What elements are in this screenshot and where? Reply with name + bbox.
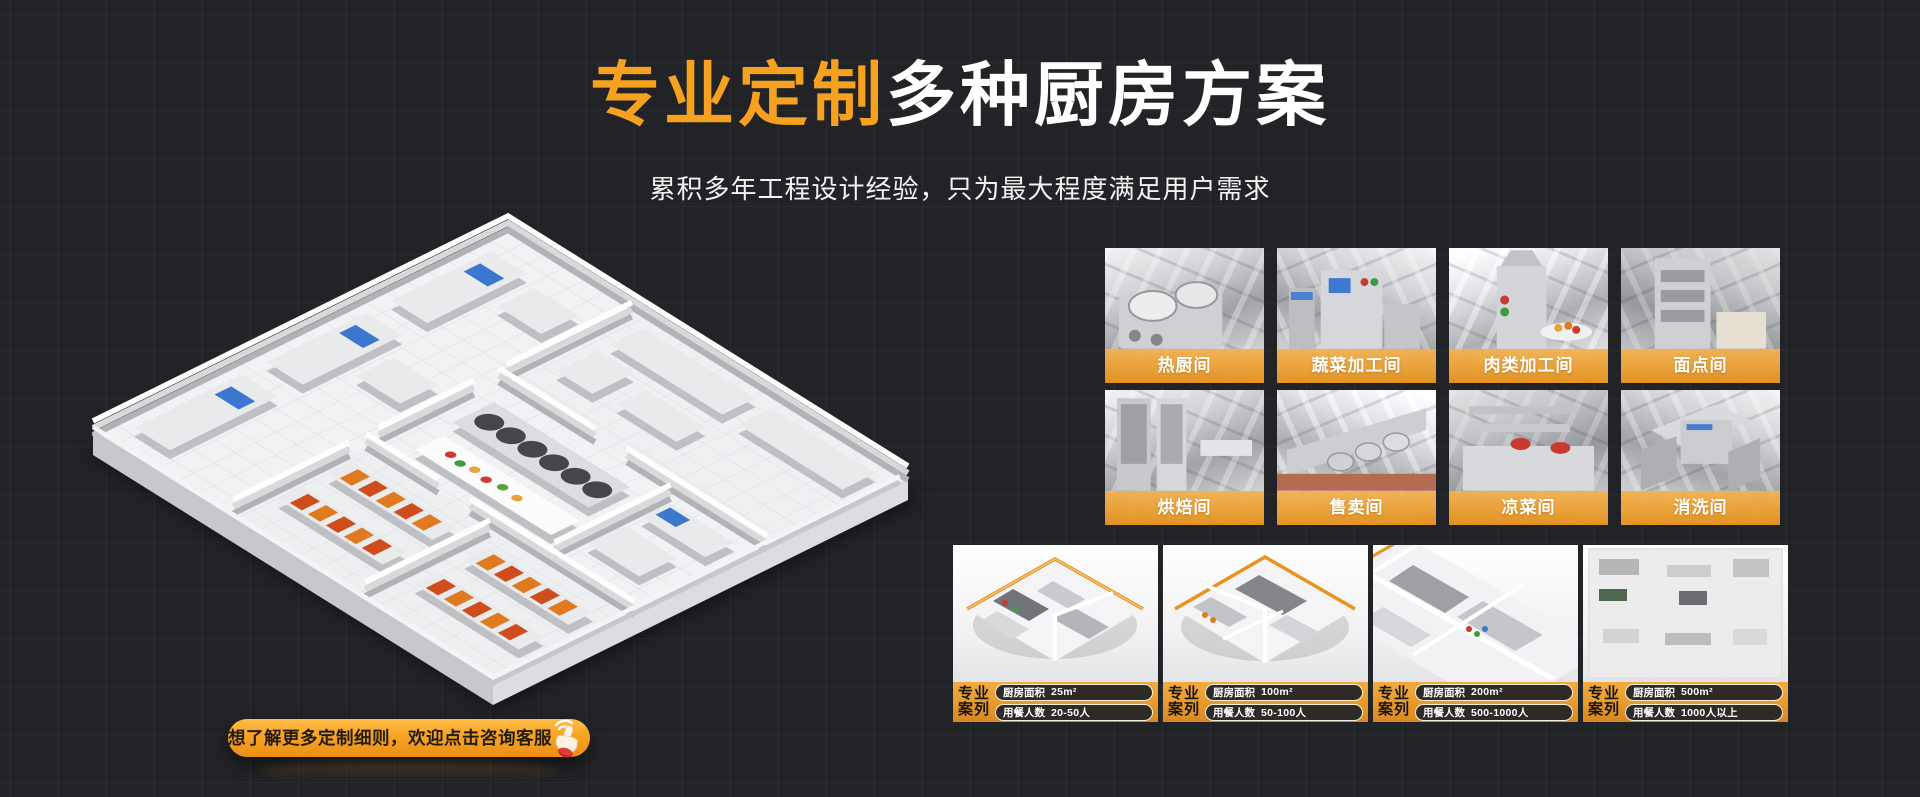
case-diners-pill: 用餐人数 1000人以上 — [1625, 704, 1783, 721]
case-diners-pill: 用餐人数 20-50人 — [995, 704, 1153, 721]
case-tag-line2: 案列 — [1378, 702, 1410, 718]
case-tag: 专业 案列 — [1168, 686, 1200, 718]
case-diners-label: 用餐人数 — [1213, 705, 1255, 720]
room-label: 凉菜间 — [1449, 491, 1608, 525]
case-area-pill: 厨房面积 100m² — [1205, 684, 1363, 701]
consult-cta-button[interactable]: 想了解更多定制细则，欢迎点击咨询客服 — [228, 719, 590, 757]
case-info-bar: 专业 案列 厨房面积 200m² 用餐人数 500-1000人 — [1373, 682, 1578, 722]
case-specs: 厨房面积 25m² 用餐人数 20-50人 — [995, 684, 1153, 721]
case-area-label: 厨房面积 — [1423, 685, 1465, 700]
room-label: 消洗间 — [1621, 491, 1780, 525]
case-area-pill: 厨房面积 500m² — [1625, 684, 1783, 701]
consult-cta-label: 想了解更多定制细则，欢迎点击咨询客服 — [228, 719, 546, 757]
case-tag: 专业 案列 — [1588, 686, 1620, 718]
case-card-100m2[interactable]: 专业 案列 厨房面积 100m² 用餐人数 50-100人 — [1163, 545, 1368, 722]
case-area-label: 厨房面积 — [1003, 685, 1045, 700]
room-tile-washing[interactable]: 消洗间 — [1621, 390, 1780, 525]
room-label: 肉类加工间 — [1449, 349, 1608, 383]
case-tag-line1: 专业 — [1168, 686, 1200, 702]
case-diners-label: 用餐人数 — [1633, 705, 1675, 720]
case-tag-line1: 专业 — [958, 686, 990, 702]
case-specs: 厨房面积 100m² 用餐人数 50-100人 — [1205, 684, 1363, 721]
room-photo-art — [1621, 390, 1780, 491]
case-info-bar: 专业 案列 厨房面积 500m² 用餐人数 1000人以上 — [1583, 682, 1788, 722]
case-tag: 专业 案列 — [1378, 686, 1410, 718]
room-label: 蔬菜加工间 — [1277, 349, 1436, 383]
page-title-rest: 多种厨房方案 — [886, 56, 1330, 134]
room-tile-vegetable-processing[interactable]: 蔬菜加工间 — [1277, 248, 1436, 383]
case-render — [1163, 545, 1368, 682]
case-area-value: 500m² — [1681, 686, 1713, 698]
room-tile-serving[interactable]: 售卖间 — [1277, 390, 1436, 525]
case-diners-label: 用餐人数 — [1423, 705, 1465, 720]
case-tag: 专业 案列 — [958, 686, 990, 718]
room-tile-hot-kitchen[interactable]: 热厨间 — [1105, 248, 1264, 383]
case-area-value: 200m² — [1471, 686, 1503, 698]
room-photo-art — [1449, 248, 1608, 349]
cta-reflection — [258, 763, 560, 779]
room-label: 烘焙间 — [1105, 491, 1264, 525]
case-tag-line1: 专业 — [1588, 686, 1620, 702]
room-photo-art — [1105, 390, 1264, 491]
case-info-bar: 专业 案列 厨房面积 25m² 用餐人数 20-50人 — [953, 682, 1158, 722]
room-tile-cold-dish[interactable]: 凉菜间 — [1449, 390, 1608, 525]
room-label: 热厨间 — [1105, 349, 1264, 383]
room-photo-art — [1277, 248, 1436, 349]
room-photo-art — [1105, 248, 1264, 349]
room-photo-art — [1277, 390, 1436, 491]
case-render — [953, 545, 1158, 682]
case-area-pill: 厨房面积 25m² — [995, 684, 1153, 701]
case-diners-value: 50-100人 — [1261, 705, 1306, 720]
room-tiles-grid: 热厨间 蔬菜加工间 肉类加工间 — [1105, 248, 1780, 525]
kitchen-solutions-banner: 专业定制多种厨房方案 累积多年工程设计经验，只为最大程度满足用户需求 — [0, 0, 1920, 797]
case-area-label: 厨房面积 — [1213, 685, 1255, 700]
case-tag-line2: 案列 — [1168, 702, 1200, 718]
case-area-value: 25m² — [1051, 686, 1077, 698]
case-render — [1373, 545, 1578, 682]
room-tile-meat-processing[interactable]: 肉类加工间 — [1449, 248, 1608, 383]
case-diners-label: 用餐人数 — [1003, 705, 1045, 720]
case-render — [1583, 545, 1788, 682]
room-label: 售卖间 — [1277, 491, 1436, 525]
room-photo-art — [1449, 390, 1608, 491]
room-tile-baking[interactable]: 烘焙间 — [1105, 390, 1264, 525]
case-card-25m2[interactable]: 专业 案列 厨房面积 25m² 用餐人数 20-50人 — [953, 545, 1158, 722]
case-area-pill: 厨房面积 200m² — [1415, 684, 1573, 701]
case-area-label: 厨房面积 — [1633, 685, 1675, 700]
click-hand-icon — [542, 711, 588, 759]
case-tag-line2: 案列 — [1588, 702, 1620, 718]
case-specs: 厨房面积 500m² 用餐人数 1000人以上 — [1625, 684, 1783, 721]
room-tile-pastry[interactable]: 面点间 — [1621, 248, 1780, 383]
case-tag-line2: 案列 — [958, 702, 990, 718]
case-info-bar: 专业 案列 厨房面积 100m² 用餐人数 50-100人 — [1163, 682, 1368, 722]
case-area-value: 100m² — [1261, 686, 1293, 698]
page-title: 专业定制多种厨房方案 — [0, 52, 1920, 138]
case-specs: 厨房面积 200m² 用餐人数 500-1000人 — [1415, 684, 1573, 721]
case-card-200m2[interactable]: 专业 案列 厨房面积 200m² 用餐人数 500-1000人 — [1373, 545, 1578, 722]
kitchen-floorplan-render — [38, 168, 938, 728]
room-photo-art — [1621, 248, 1780, 349]
case-cards-row: 专业 案列 厨房面积 25m² 用餐人数 20-50人 — [953, 545, 1788, 722]
case-diners-pill: 用餐人数 500-1000人 — [1415, 704, 1573, 721]
case-diners-value: 500-1000人 — [1471, 705, 1529, 720]
room-label: 面点间 — [1621, 349, 1780, 383]
case-diners-value: 1000人以上 — [1681, 705, 1738, 720]
case-diners-value: 20-50人 — [1051, 705, 1090, 720]
case-card-500m2[interactable]: 专业 案列 厨房面积 500m² 用餐人数 1000人以上 — [1583, 545, 1788, 722]
page-title-highlight: 专业定制 — [590, 56, 886, 134]
case-tag-line1: 专业 — [1378, 686, 1410, 702]
case-diners-pill: 用餐人数 50-100人 — [1205, 704, 1363, 721]
